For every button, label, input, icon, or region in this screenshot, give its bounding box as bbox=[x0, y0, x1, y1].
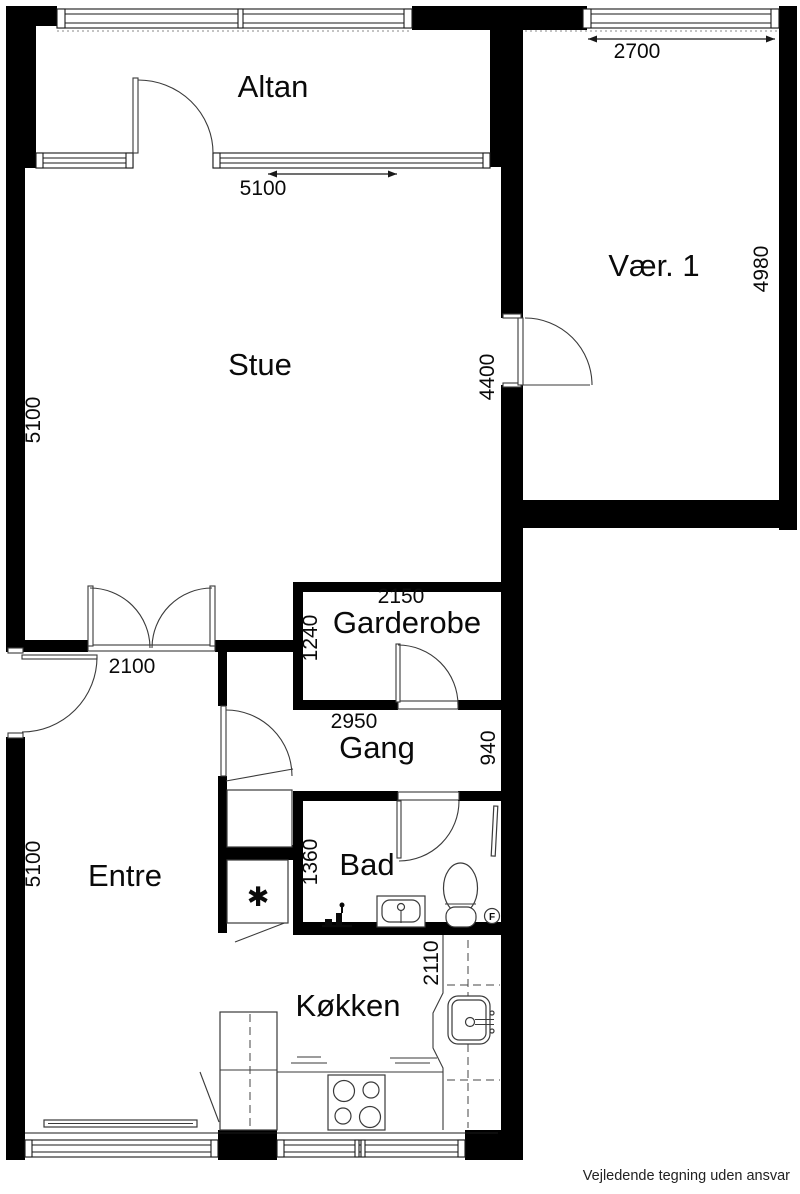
altan-door bbox=[133, 78, 213, 153]
room-label-koekken: Køkken bbox=[295, 988, 400, 1023]
wall-garderobe-bottom-right bbox=[458, 700, 523, 710]
wall-left-altan bbox=[6, 6, 36, 168]
wall-right-vaer1 bbox=[779, 6, 797, 530]
wall-bad-top-left bbox=[293, 791, 398, 801]
wall-bad-top-right bbox=[458, 791, 523, 801]
mirror bbox=[491, 806, 498, 856]
bad-door bbox=[397, 792, 459, 861]
dim-vaer1-height: 4980 bbox=[750, 246, 773, 293]
garderobe-door bbox=[396, 644, 458, 709]
kitchen-sink bbox=[448, 996, 494, 1044]
disclaimer-text: Vejledende tegning uden ansvar bbox=[583, 1168, 790, 1184]
dim-altan-width: 5100 bbox=[240, 177, 287, 200]
kitchen-fixtures bbox=[220, 935, 500, 1130]
gang-door bbox=[221, 706, 293, 781]
dim-garderobe-width: 2150 bbox=[378, 585, 425, 608]
floor-drain-label: F bbox=[489, 912, 495, 923]
vaer1-window bbox=[583, 9, 779, 28]
wall-garderobe-bottom-left bbox=[293, 700, 398, 710]
shaft-symbol: ✱ bbox=[247, 882, 270, 913]
wall-altan-vaer1 bbox=[490, 6, 523, 167]
dim-gang-depth: 940 bbox=[477, 730, 500, 765]
wall-bottom-pier-left bbox=[218, 1130, 277, 1160]
stove bbox=[328, 1075, 385, 1130]
dim-stue-opening: 2100 bbox=[109, 655, 156, 678]
altan-stue-glazing bbox=[36, 153, 490, 168]
room-label-gang: Gang bbox=[339, 730, 415, 765]
dim-vaer1-width: 2700 bbox=[614, 40, 661, 63]
dim-stue-door: 4400 bbox=[476, 354, 499, 401]
dim-bad-depth: 1360 bbox=[299, 839, 322, 886]
wall-bottom-pier-right bbox=[465, 1130, 523, 1160]
wall-right-koekken bbox=[501, 935, 523, 1160]
room-label-stue: Stue bbox=[228, 347, 292, 382]
dim-koekken-width: 2110 bbox=[420, 940, 443, 985]
room-label-bad: Bad bbox=[339, 847, 394, 882]
wall-stue-vaer1-upper bbox=[501, 160, 523, 318]
toilet bbox=[444, 863, 478, 927]
tall-cabinet bbox=[220, 1012, 277, 1130]
dim-garderobe-depth: 1240 bbox=[299, 615, 322, 662]
room-label-entre: Entre bbox=[88, 858, 162, 893]
room-label-vaer1: Vær. 1 bbox=[608, 248, 699, 283]
stue-double-door bbox=[88, 586, 215, 651]
wall-stue-bottom-right bbox=[215, 640, 303, 652]
floor-plan-svg: ✱ F bbox=[0, 0, 800, 1194]
room-label-garderobe: Garderobe bbox=[333, 605, 481, 640]
koekken-window bbox=[277, 1140, 465, 1157]
floor-plan-page: ✱ F bbox=[0, 0, 800, 1194]
radiator bbox=[44, 1120, 197, 1127]
dim-entre-height: 5100 bbox=[22, 841, 45, 888]
altan-railing-top bbox=[57, 9, 412, 28]
koekken-door bbox=[200, 1072, 219, 1122]
dim-gang-width: 2950 bbox=[331, 710, 378, 733]
closet-door bbox=[235, 922, 287, 942]
wall-vaer1-bottom bbox=[501, 500, 797, 528]
closet-upper-box bbox=[227, 790, 292, 847]
entrance-door bbox=[8, 648, 97, 738]
wall-left-entre bbox=[6, 737, 25, 1160]
vaer1-door bbox=[503, 314, 592, 387]
floor-drain: F bbox=[485, 909, 500, 924]
room-labels: Altan Stue Vær. 1 Garderobe Gang Entre B… bbox=[88, 69, 700, 1023]
wall-stue-vaer1-lower bbox=[501, 385, 523, 508]
walls bbox=[6, 6, 797, 1160]
wall-entre-gang-upper bbox=[218, 652, 227, 706]
dim-stue-height: 5100 bbox=[22, 397, 45, 444]
bathroom-sink bbox=[377, 896, 425, 927]
room-label-altan: Altan bbox=[238, 69, 309, 104]
